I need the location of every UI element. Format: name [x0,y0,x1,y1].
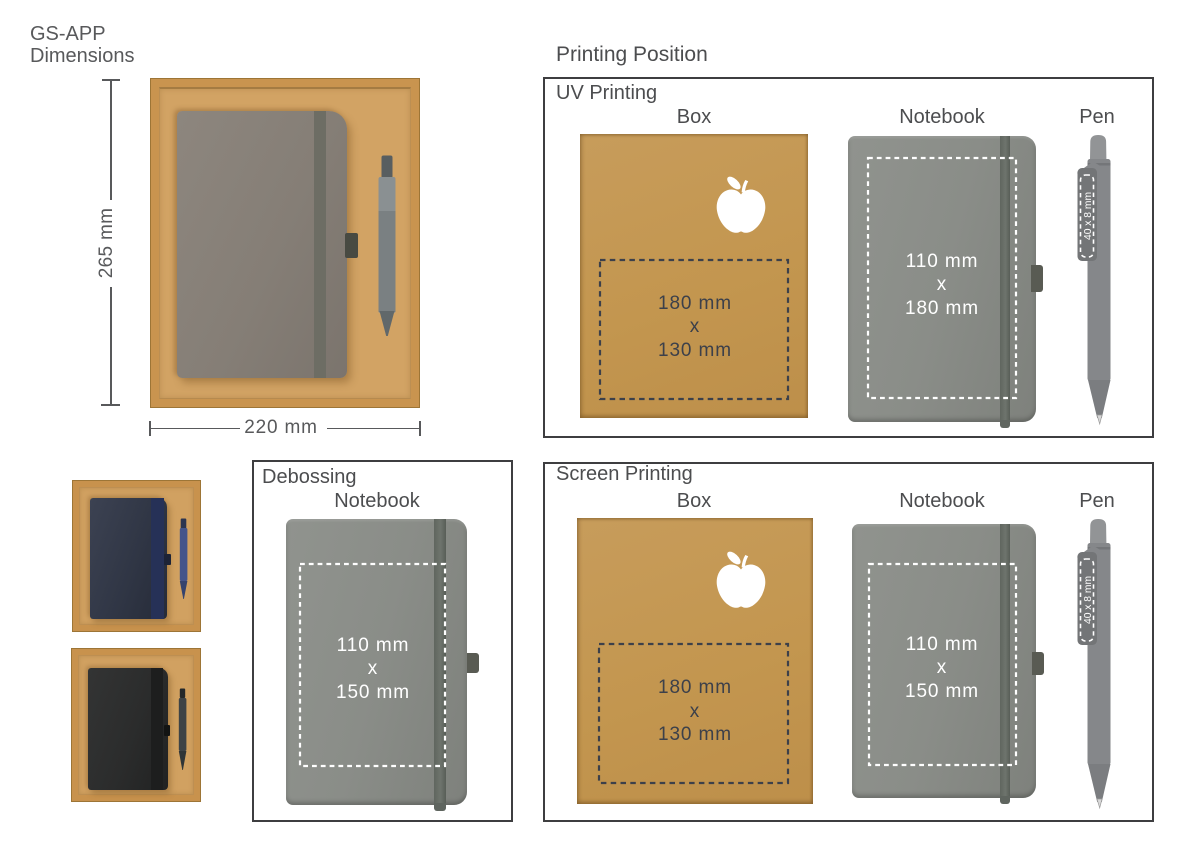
svg-text:40 x 8 mm: 40 x 8 mm [1083,192,1094,240]
svg-text:40 x 8 mm: 40 x 8 mm [1083,576,1094,624]
